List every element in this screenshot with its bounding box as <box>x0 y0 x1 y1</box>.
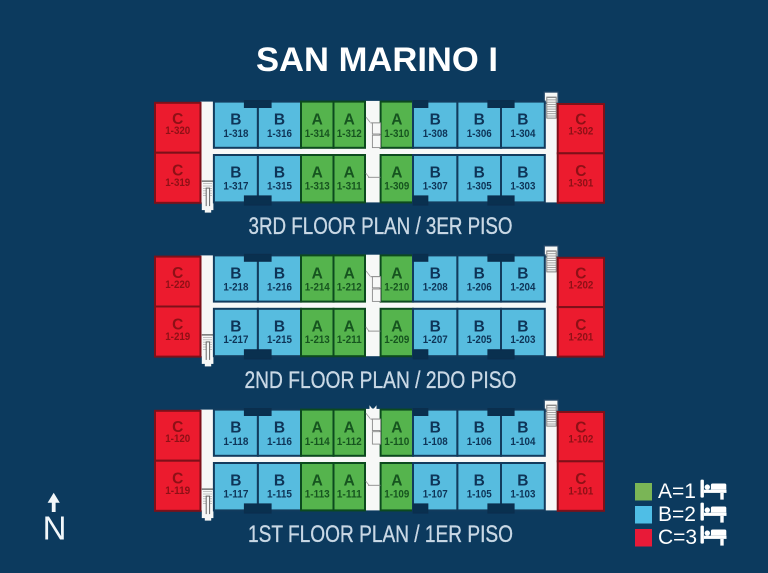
svg-text:1-215: 1-215 <box>267 334 293 346</box>
svg-text:1-204: 1-204 <box>510 282 536 294</box>
svg-text:1-206: 1-206 <box>467 282 492 294</box>
svg-text:1-108: 1-108 <box>423 436 448 448</box>
svg-text:B: B <box>474 265 485 282</box>
svg-text:B: B <box>474 112 485 129</box>
svg-text:N: N <box>43 510 67 547</box>
svg-text:1-313: 1-313 <box>305 180 330 192</box>
svg-text:A: A <box>391 420 402 437</box>
svg-text:1-117: 1-117 <box>223 488 248 500</box>
svg-text:A: A <box>391 473 402 490</box>
svg-text:1-310: 1-310 <box>384 128 409 140</box>
svg-text:B: B <box>274 112 285 129</box>
svg-text:1-311: 1-311 <box>337 180 363 192</box>
svg-text:1-112: 1-112 <box>337 436 362 448</box>
svg-text:1-315: 1-315 <box>267 180 293 192</box>
svg-text:1-316: 1-316 <box>267 128 292 140</box>
svg-text:B: B <box>274 318 285 335</box>
svg-text:1-201: 1-201 <box>568 331 594 343</box>
svg-text:A: A <box>391 265 402 282</box>
svg-text:A=1: A=1 <box>658 480 696 503</box>
svg-text:B: B <box>517 265 528 282</box>
svg-text:A: A <box>312 318 323 335</box>
svg-text:1-306: 1-306 <box>467 128 492 140</box>
svg-text:B: B <box>474 318 485 335</box>
svg-text:3RD FLOOR PLAN / 3ER PISO: 3RD FLOOR PLAN / 3ER PISO <box>249 213 513 240</box>
svg-text:C=3: C=3 <box>658 526 697 549</box>
svg-text:B: B <box>230 112 241 129</box>
svg-text:B: B <box>274 165 285 182</box>
svg-text:1-203: 1-203 <box>510 334 535 346</box>
svg-text:1-317: 1-317 <box>223 180 248 192</box>
svg-text:1-119: 1-119 <box>165 485 190 497</box>
svg-text:A: A <box>344 318 355 335</box>
svg-text:B: B <box>230 420 241 437</box>
svg-text:1-205: 1-205 <box>467 334 493 346</box>
svg-text:1-102: 1-102 <box>568 434 593 446</box>
svg-text:1-320: 1-320 <box>165 125 190 137</box>
svg-text:1-104: 1-104 <box>510 436 536 448</box>
svg-text:1-213: 1-213 <box>305 334 330 346</box>
svg-text:1-110: 1-110 <box>384 436 409 448</box>
svg-text:B=2: B=2 <box>658 503 696 526</box>
svg-text:1-109: 1-109 <box>384 488 409 500</box>
svg-text:B: B <box>274 265 285 282</box>
svg-text:B: B <box>430 420 441 437</box>
svg-text:B: B <box>474 420 485 437</box>
svg-text:1-301: 1-301 <box>568 178 594 190</box>
svg-text:1-218: 1-218 <box>223 282 248 294</box>
svg-text:1-208: 1-208 <box>423 282 448 294</box>
svg-text:1-114: 1-114 <box>305 436 331 448</box>
svg-text:2ND FLOOR PLAN / 2DO PISO: 2ND FLOOR PLAN / 2DO PISO <box>245 367 517 394</box>
svg-text:B: B <box>517 318 528 335</box>
svg-text:B: B <box>517 420 528 437</box>
svg-text:1-113: 1-113 <box>305 488 330 500</box>
svg-text:1-116: 1-116 <box>267 436 292 448</box>
svg-text:B: B <box>474 165 485 182</box>
svg-text:1-214: 1-214 <box>305 282 331 294</box>
svg-text:1-118: 1-118 <box>223 436 248 448</box>
svg-text:A: A <box>344 473 355 490</box>
svg-text:A: A <box>344 420 355 437</box>
svg-text:A: A <box>312 165 323 182</box>
svg-text:1-101: 1-101 <box>568 486 594 498</box>
svg-text:B: B <box>517 473 528 490</box>
svg-text:1-220: 1-220 <box>165 279 190 291</box>
svg-text:B: B <box>230 318 241 335</box>
svg-text:A: A <box>391 112 402 129</box>
svg-text:1-106: 1-106 <box>467 436 492 448</box>
svg-text:A: A <box>312 112 323 129</box>
svg-text:1-314: 1-314 <box>305 128 331 140</box>
svg-text:A: A <box>312 420 323 437</box>
svg-text:1-319: 1-319 <box>165 177 190 189</box>
svg-text:1-210: 1-210 <box>384 282 409 294</box>
svg-text:1-308: 1-308 <box>423 128 448 140</box>
svg-text:A: A <box>312 473 323 490</box>
svg-text:1-312: 1-312 <box>337 128 362 140</box>
svg-text:B: B <box>230 473 241 490</box>
svg-text:B: B <box>430 165 441 182</box>
svg-text:1-207: 1-207 <box>423 334 448 346</box>
svg-text:1-216: 1-216 <box>267 282 292 294</box>
svg-text:B: B <box>430 473 441 490</box>
svg-text:B: B <box>430 265 441 282</box>
svg-text:1-318: 1-318 <box>223 128 248 140</box>
svg-text:1ST FLOOR PLAN / 1ER PISO: 1ST FLOOR PLAN / 1ER PISO <box>248 521 513 548</box>
svg-text:1-303: 1-303 <box>510 180 535 192</box>
svg-text:B: B <box>474 473 485 490</box>
svg-text:1-103: 1-103 <box>510 488 535 500</box>
svg-text:1-307: 1-307 <box>423 180 448 192</box>
svg-text:B: B <box>230 165 241 182</box>
svg-text:1-302: 1-302 <box>568 126 593 138</box>
svg-text:1-305: 1-305 <box>467 180 493 192</box>
svg-text:1-217: 1-217 <box>223 334 248 346</box>
svg-text:B: B <box>274 420 285 437</box>
svg-text:B: B <box>430 318 441 335</box>
svg-text:1-304: 1-304 <box>510 128 536 140</box>
svg-text:A: A <box>312 265 323 282</box>
svg-text:B: B <box>430 112 441 129</box>
svg-text:A: A <box>391 318 402 335</box>
svg-text:1-120: 1-120 <box>165 433 190 445</box>
svg-text:1-219: 1-219 <box>165 331 190 343</box>
svg-text:1-209: 1-209 <box>384 334 409 346</box>
svg-text:1-107: 1-107 <box>423 488 448 500</box>
svg-text:1-212: 1-212 <box>337 282 362 294</box>
svg-text:1-105: 1-105 <box>467 488 493 500</box>
svg-text:1-115: 1-115 <box>267 488 293 500</box>
svg-text:SAN MARINO I: SAN MARINO I <box>256 41 498 79</box>
svg-text:B: B <box>274 473 285 490</box>
svg-text:B: B <box>517 112 528 129</box>
svg-text:A: A <box>344 112 355 129</box>
svg-text:B: B <box>517 165 528 182</box>
svg-text:A: A <box>391 165 402 182</box>
svg-text:1-211: 1-211 <box>337 334 363 346</box>
svg-text:A: A <box>344 265 355 282</box>
svg-text:1-111: 1-111 <box>337 488 363 500</box>
svg-text:1-309: 1-309 <box>384 180 409 192</box>
svg-text:1-202: 1-202 <box>568 279 593 291</box>
svg-text:A: A <box>344 165 355 182</box>
svg-text:B: B <box>230 265 241 282</box>
